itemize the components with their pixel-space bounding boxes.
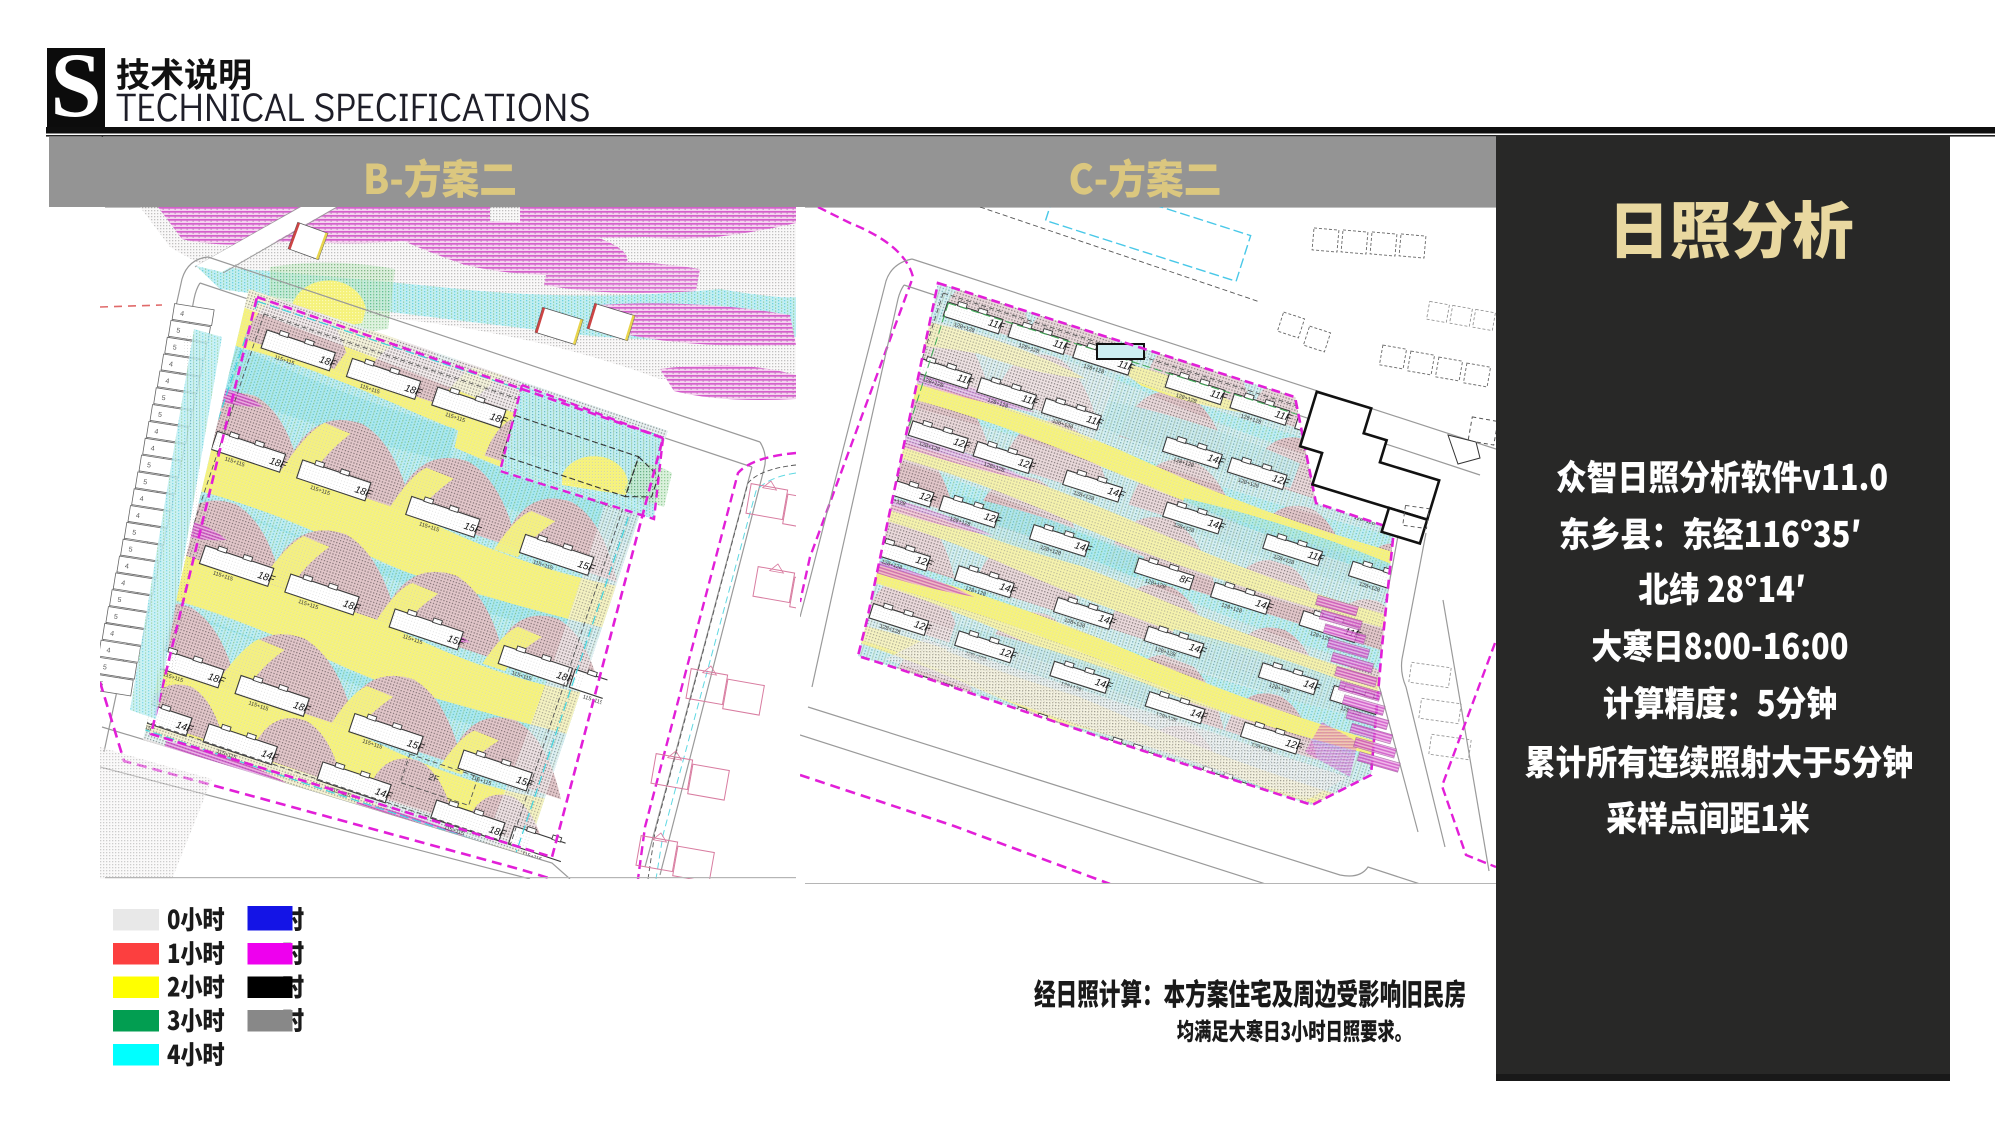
svg-text:128+128: 128+128 [1012,727,1034,739]
svg-text:11F: 11F [1392,577,1412,593]
svg-text:128+128: 128+128 [1108,758,1130,770]
svg-text:12F: 12F [951,692,972,708]
svg-text:18F: 18F [626,694,647,710]
svg-text:128+128: 128+128 [917,697,939,709]
svg-text:S: S [50,34,101,136]
svg-text:18F: 18F [565,850,586,866]
svg-text:128+128: 128+128 [1198,787,1220,799]
